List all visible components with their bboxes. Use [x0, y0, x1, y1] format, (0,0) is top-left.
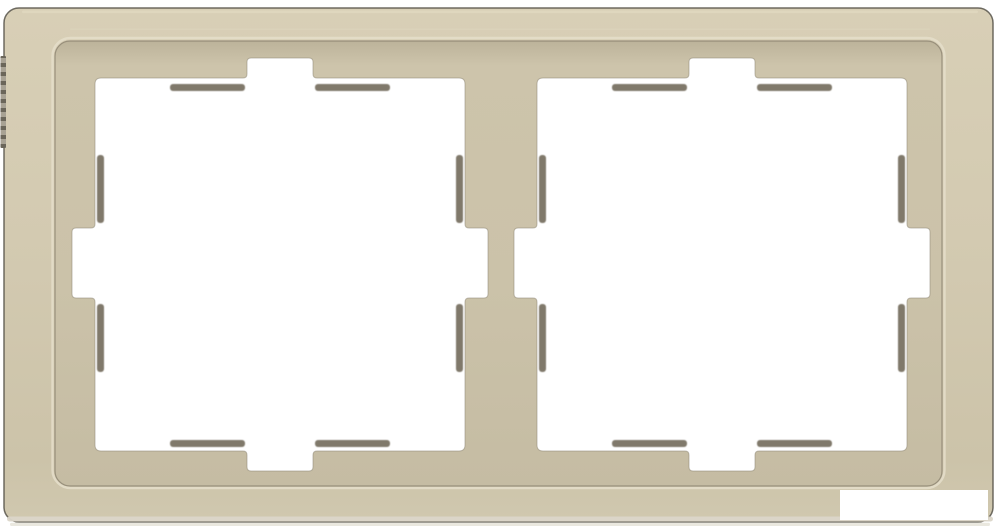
opening-cutout-left — [72, 58, 488, 471]
top-edge-highlight — [22, 11, 978, 14]
ledge-shadow — [898, 304, 905, 372]
watermark-cover — [840, 490, 988, 520]
ledge-shadow — [757, 440, 832, 447]
ledge-shadow — [757, 84, 832, 91]
ledge-shadow — [315, 84, 390, 91]
frame-photo-svg — [0, 0, 1000, 526]
ledge-shadow — [612, 84, 687, 91]
top-face-curve-highlight — [70, 29, 930, 30]
ledge-shadow — [97, 304, 104, 372]
ledge-shadow — [898, 155, 905, 223]
ledge-shadow — [456, 304, 463, 372]
ledge-shadow — [539, 304, 546, 372]
ledge-shadow — [612, 440, 687, 447]
left-edge-knurling — [1, 56, 7, 148]
ledge-shadow — [315, 440, 390, 447]
ledge-shadow — [456, 155, 463, 223]
ledge-shadow — [539, 155, 546, 223]
opening-cutout-right — [514, 58, 930, 471]
ledge-shadow — [97, 155, 104, 223]
product-photo — [0, 0, 1000, 526]
ledge-shadow — [170, 84, 245, 91]
ledge-shadow — [170, 440, 245, 447]
